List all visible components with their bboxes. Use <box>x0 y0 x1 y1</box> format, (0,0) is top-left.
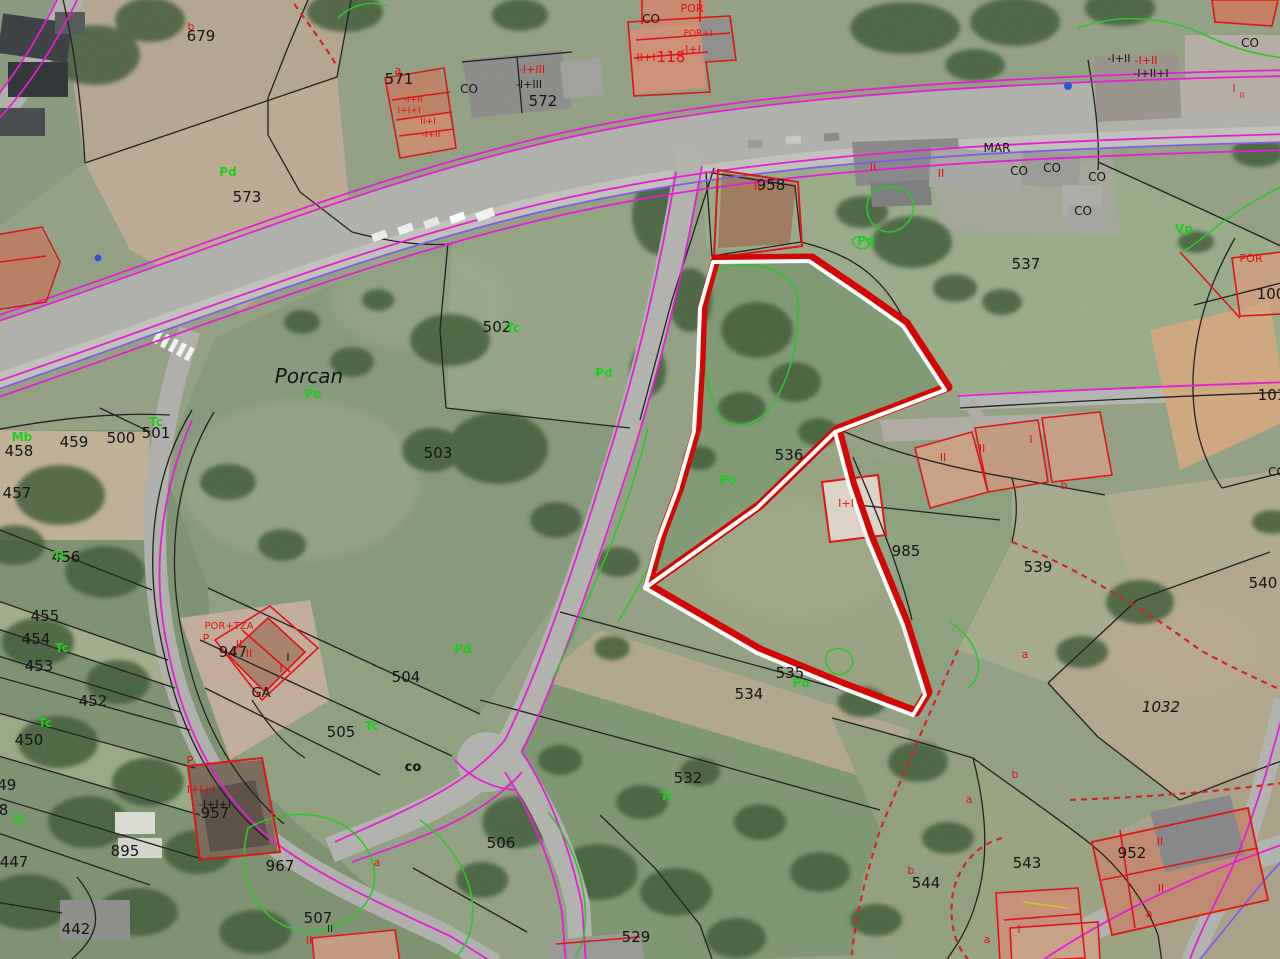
land-use-label: Tc <box>365 719 379 733</box>
codes-red-label: -I+III <box>519 63 545 76</box>
parcels-label: 504 <box>392 668 421 686</box>
parcels-label: 952 <box>1118 844 1147 862</box>
parcels-label: 457 <box>3 484 32 502</box>
land-use-label: Tc <box>660 789 674 803</box>
codes-red-label: b <box>908 864 915 877</box>
parcels-label: 447 <box>0 853 28 871</box>
parcels-label: 455 <box>31 607 60 625</box>
land-use-label: Tc <box>506 321 520 335</box>
codes-red-label: b <box>1061 479 1068 492</box>
codes-black-label: CO <box>1268 465 1280 479</box>
codes-red-label: -I+II <box>1135 54 1158 67</box>
land-use-label: Tc <box>149 415 163 429</box>
codes-black-label: -I+II <box>1108 52 1131 65</box>
parcels-label: 442 <box>62 920 91 938</box>
codes-black-label: CO <box>1088 170 1106 184</box>
land-use-label: Pd <box>595 366 612 380</box>
land-use-label: Tc <box>55 641 69 655</box>
codes-red-label: II <box>938 167 945 180</box>
codes-black-label: -I+III <box>516 78 542 91</box>
land-use-label: Po <box>304 387 321 401</box>
codes-black-label: CO <box>1043 161 1061 175</box>
codes-black-label: Porcan <box>275 364 343 388</box>
parcels-label: 895 <box>111 842 140 860</box>
codes-red-label: I+I <box>838 497 854 510</box>
codes-red-label: POR+I <box>684 29 713 39</box>
parcels-label: 536 <box>775 446 804 464</box>
codes-red-label: a <box>984 933 991 946</box>
codes-red-label: II+I <box>637 51 656 64</box>
codes-red-label: -I+II <box>422 130 441 140</box>
parcels-label: 503 <box>424 444 453 462</box>
codes-red-label: a <box>395 64 402 77</box>
codes-red-label: a <box>374 856 381 869</box>
parcels-label: 947 <box>219 643 248 661</box>
codes-black-label: CO <box>642 12 660 26</box>
codes-black-label: CO <box>1010 164 1028 178</box>
codes-red-label: II <box>246 647 253 660</box>
cadastral-map-stage: 6795735715729585375025034594585005014574… <box>0 0 1280 959</box>
codes-red-label: II <box>754 180 761 193</box>
codes-black-label: co <box>405 760 422 775</box>
codes-red-label: II <box>236 638 243 651</box>
codes-black-label: CO <box>1241 36 1259 50</box>
parcels-label: 537 <box>1012 255 1041 273</box>
land-use-label: Mb <box>12 430 33 444</box>
codes-red-label: II <box>870 161 877 174</box>
parcels-label: 573 <box>233 188 262 206</box>
parcels-label: 967 <box>266 857 295 875</box>
codes-red-label: II <box>979 442 986 455</box>
land-use-label: Po <box>719 473 736 487</box>
codes-red-label: II <box>306 934 313 947</box>
codes-red-label: b <box>1012 768 1019 781</box>
parcels-label: 449 <box>0 776 16 794</box>
codes-red-label: II <box>1158 882 1165 895</box>
codes-black-label: GA <box>252 686 271 701</box>
parcels-label: 506 <box>487 834 516 852</box>
codes-red-label: II <box>1157 835 1164 848</box>
codes-black-label: MAR <box>984 141 1011 155</box>
codes-red-label: POR <box>681 2 704 15</box>
cadastral-map-canvas[interactable]: 6795735715729585375025034594585005014574… <box>0 0 1280 959</box>
land-use-label: Tc <box>38 716 52 730</box>
codes-red-label: I+I+I <box>187 783 215 796</box>
parcels-label: 100 <box>1257 285 1280 303</box>
parcels-label: 448 <box>0 801 8 819</box>
codes-red-label: a <box>966 793 973 806</box>
parcels-label: 534 <box>735 685 764 703</box>
codes-red-label: I+I+I <box>397 106 420 116</box>
land-use-label: Vp <box>1175 222 1193 236</box>
aerial-grain-texture <box>0 0 1280 959</box>
parcels-label: 500 <box>107 429 136 447</box>
codes-red-label: -I+I <box>681 43 701 56</box>
codes-black-label: CO <box>1074 204 1092 218</box>
codes-black-label: -I+II+I <box>1133 67 1168 80</box>
parcels-label: 453 <box>25 657 54 675</box>
land-use-label: Pd <box>857 234 874 248</box>
codes-red-label: P <box>187 754 194 767</box>
parcels-label: 985 <box>892 542 921 560</box>
parcels-label: 544 <box>912 874 941 892</box>
codes-black-label: II <box>327 924 333 935</box>
codes-red-label: I <box>279 662 282 675</box>
parcels-label: 101 <box>1258 386 1280 404</box>
parcels-label: 1032 <box>1142 698 1180 716</box>
codes-black-label: CO <box>460 82 478 96</box>
codes-red-label: II <box>1240 91 1245 100</box>
parcels-label: 540 <box>1249 574 1278 592</box>
parcels-label: 505 <box>327 723 356 741</box>
land-use-label: Tc <box>12 813 26 827</box>
land-use-label: Tc <box>53 549 67 563</box>
codes-red-label: II <box>940 451 947 464</box>
codes-red-label: I <box>1029 433 1032 446</box>
parcels-label: 532 <box>674 769 703 787</box>
parcels-label: 543 <box>1013 854 1042 872</box>
parcels-label: 539 <box>1024 558 1053 576</box>
codes-red-label: I <box>1017 923 1020 936</box>
codes-black-label: I <box>286 651 289 664</box>
codes-red-label: b <box>188 20 195 33</box>
parcels-label: 454 <box>22 630 51 648</box>
codes-red-label: I <box>1232 82 1235 95</box>
codes-black-label: -I+I+I <box>199 798 231 811</box>
codes-red-label: a <box>1146 907 1153 920</box>
land-use-label: Pd <box>219 165 236 179</box>
codes-red-label: POR+TZA <box>204 621 253 632</box>
parcels-label: 958 <box>757 176 786 194</box>
parcels-label: 450 <box>15 731 44 749</box>
codes-red-label: II+I <box>420 117 436 127</box>
parcels-label: 572 <box>529 92 558 110</box>
codes-red-label: a <box>1022 648 1029 661</box>
parcels-label: 452 <box>79 692 108 710</box>
land-use-label: Po <box>792 676 809 690</box>
land-use-label: Pd <box>454 642 471 656</box>
parcels-label: 458 <box>5 442 34 460</box>
parcels-label: 529 <box>622 928 651 946</box>
codes-red-label: P <box>203 632 210 645</box>
codes-red-label: -I+II <box>404 95 423 105</box>
codes-red-label: POR <box>1240 252 1263 265</box>
parcels-label: 459 <box>60 433 89 451</box>
